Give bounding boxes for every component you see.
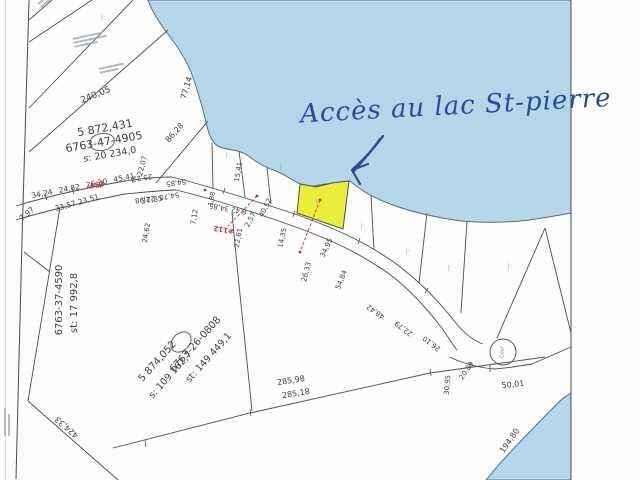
measurement-label: 22,61 (234, 228, 244, 249)
measurement-label: 285,98 (277, 375, 306, 387)
cadastral-map: 34,24 24,82 26,30 45,4122,0725,2254,8554… (0, 0, 640, 480)
measurement-label: 240,05 (80, 86, 113, 106)
measurement-label: 14,35 (277, 227, 288, 248)
measurement-label: 33,57 23,51 (54, 193, 100, 213)
lot-number-marker: ∕· (315, 196, 322, 205)
measurement-label: 50,01 (501, 380, 525, 390)
lot-number-marker: ∕· (360, 221, 367, 230)
measurement-label: 424,33 (54, 415, 80, 439)
measurement-label: 86,28 (164, 122, 185, 144)
lot-number-marker: ∕· (405, 246, 412, 255)
measurement-label: 285,18 (282, 388, 311, 400)
map-labels-layer: 34,24 24,82 26,30 45,4122,0725,2254,8554… (0, 0, 640, 480)
measurement-label: 34,95 (320, 237, 335, 258)
parcel-area: st: 17 992,8 (70, 273, 80, 333)
measurement-label: 48,42 (366, 302, 386, 319)
road-ref-label: #53 (89, 181, 106, 191)
lot-number-marker: ∕· (225, 150, 232, 159)
measurement-label: 37,85 (141, 195, 163, 205)
road-ref-label: #112 (213, 224, 234, 234)
measurement-label: 30,95 (444, 375, 453, 396)
lot-number-marker: ∕· (507, 261, 514, 270)
measurement-label: 26,10 (422, 334, 442, 352)
measurement-label: 40,52 (258, 198, 274, 219)
measurement-label: 15,41 (234, 162, 244, 183)
measurement-label: 194,80 (499, 427, 522, 455)
measurement-label: 24,62 (142, 223, 152, 244)
culdesac-label: Cour (501, 346, 506, 358)
lot-number-marker: ∕· (447, 263, 454, 272)
measurement-label: 20,89 (458, 361, 475, 381)
lot-number-marker: ∕· (85, 40, 92, 49)
measurement-label: 7,97 (18, 206, 36, 222)
measurement-label: 25,22 (132, 172, 153, 182)
measurement-label: 2,57 (244, 211, 258, 228)
measurement-label: 22,79 (394, 319, 414, 337)
lot-number-marker: ∕· (100, 12, 107, 21)
lot-number-marker: ∕· (279, 162, 286, 171)
measurement-label: 54,84 (335, 269, 349, 290)
measurement-label: 54,85 (166, 177, 187, 187)
parcel-id: 6763-37-4590 (55, 265, 65, 336)
measurement-label: 7,12 (190, 209, 200, 226)
measurement-label: 26,33 (301, 261, 313, 282)
measurement-label: 8,42 34,85 (209, 201, 247, 214)
measurement-label: 77,14 (180, 76, 194, 100)
